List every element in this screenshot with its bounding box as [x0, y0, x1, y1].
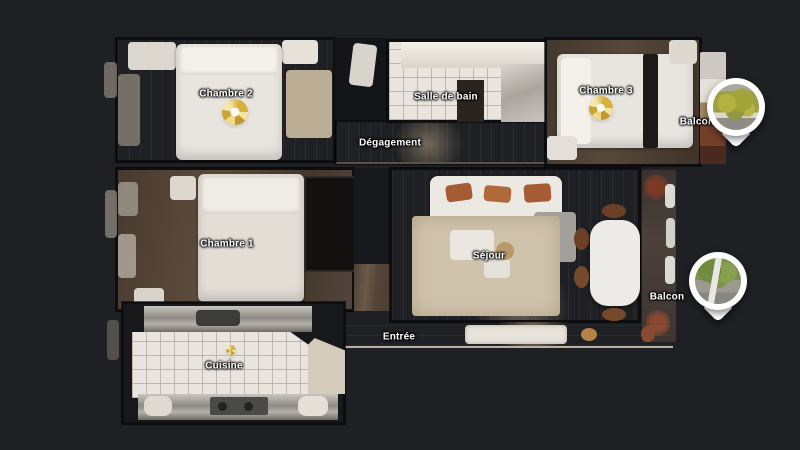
railing-segment — [665, 184, 675, 208]
left-wall-furniture — [118, 182, 138, 216]
gold-360-sweep-icon[interactable] — [222, 99, 248, 125]
exterior-furniture — [105, 190, 117, 238]
dining-chair — [574, 228, 589, 250]
counter-item — [196, 310, 240, 326]
nightstand — [170, 176, 196, 200]
room-salle-de-bain[interactable] — [387, 40, 545, 122]
sofa-cushion — [445, 182, 473, 202]
room-label-degagement: Dégagement — [359, 138, 421, 149]
sweep-center-dot — [230, 107, 239, 116]
room-sejour[interactable] — [390, 168, 640, 322]
fallen-pillow — [547, 136, 577, 160]
bed-bench — [643, 54, 658, 148]
kitchen-cabinet — [308, 338, 345, 394]
room-chambre-2[interactable] — [116, 38, 335, 162]
burner — [244, 402, 253, 411]
nightstand — [282, 40, 318, 64]
wall-gap — [354, 168, 390, 311]
dresser — [128, 42, 176, 70]
sink — [144, 396, 172, 416]
pin-body — [689, 252, 747, 310]
console-table — [465, 325, 567, 344]
dresser — [669, 40, 697, 64]
room-label-chambre-1: Chambre 1 — [200, 239, 254, 250]
floorplan-viewer: Chambre 2 Salle de bain Chambre 3 Balcon… — [0, 0, 800, 450]
decor-item — [581, 328, 597, 341]
stove — [210, 397, 268, 415]
railing-segment — [666, 218, 675, 248]
dining-chair — [574, 266, 589, 288]
room-label-sejour: Séjour — [473, 251, 505, 262]
closet-nook — [335, 38, 387, 120]
cupboard — [349, 43, 378, 88]
kitchen-counter-bottom — [138, 394, 338, 420]
room-chambre-3[interactable] — [545, 38, 701, 166]
gold-360-sweep-icon[interactable] — [226, 345, 236, 355]
balcony-photo-pin-right[interactable] — [689, 252, 747, 330]
counter-item — [298, 396, 328, 416]
bed-pillows — [561, 58, 591, 144]
dining-table — [590, 220, 640, 306]
sofa-cushion — [523, 183, 551, 203]
room-label-chambre-3: Chambre 3 — [579, 86, 633, 97]
railing-segment — [665, 256, 675, 284]
bed-pillows — [202, 178, 300, 214]
bed — [557, 54, 693, 148]
room-label-salle-de-bain: Salle de bain — [414, 92, 478, 103]
exterior-furniture — [107, 320, 119, 360]
exterior-furniture — [104, 62, 117, 98]
balcony-photo-thumbnail — [713, 84, 759, 130]
sweep-center-dot — [597, 104, 605, 112]
decor-item — [641, 326, 655, 342]
room-label-entree: Entrée — [383, 332, 415, 343]
rug — [286, 70, 332, 138]
dining-chair — [602, 204, 626, 218]
room-label-chambre-2: Chambre 2 — [199, 89, 253, 100]
dining-chair — [602, 308, 626, 321]
floor-patch — [354, 264, 390, 311]
sofa-cushion — [483, 185, 511, 203]
kitchen-counter-top — [144, 306, 312, 332]
left-wall-furniture — [118, 234, 136, 278]
gold-360-sweep-icon[interactable] — [589, 96, 613, 120]
burner — [218, 402, 227, 411]
bed-pillows — [180, 47, 278, 75]
balcony-photo-pin-top[interactable] — [707, 78, 765, 156]
shower — [501, 64, 545, 122]
balcony-photo-thumbnail — [695, 258, 741, 304]
room-balcon-droit[interactable] — [642, 170, 676, 342]
pin-body — [707, 78, 765, 136]
room-label-balcon-droit: Balcon — [650, 292, 685, 303]
left-wall-furniture — [118, 74, 140, 146]
wardrobe — [304, 176, 356, 272]
room-label-cuisine: Cuisine — [205, 361, 243, 372]
